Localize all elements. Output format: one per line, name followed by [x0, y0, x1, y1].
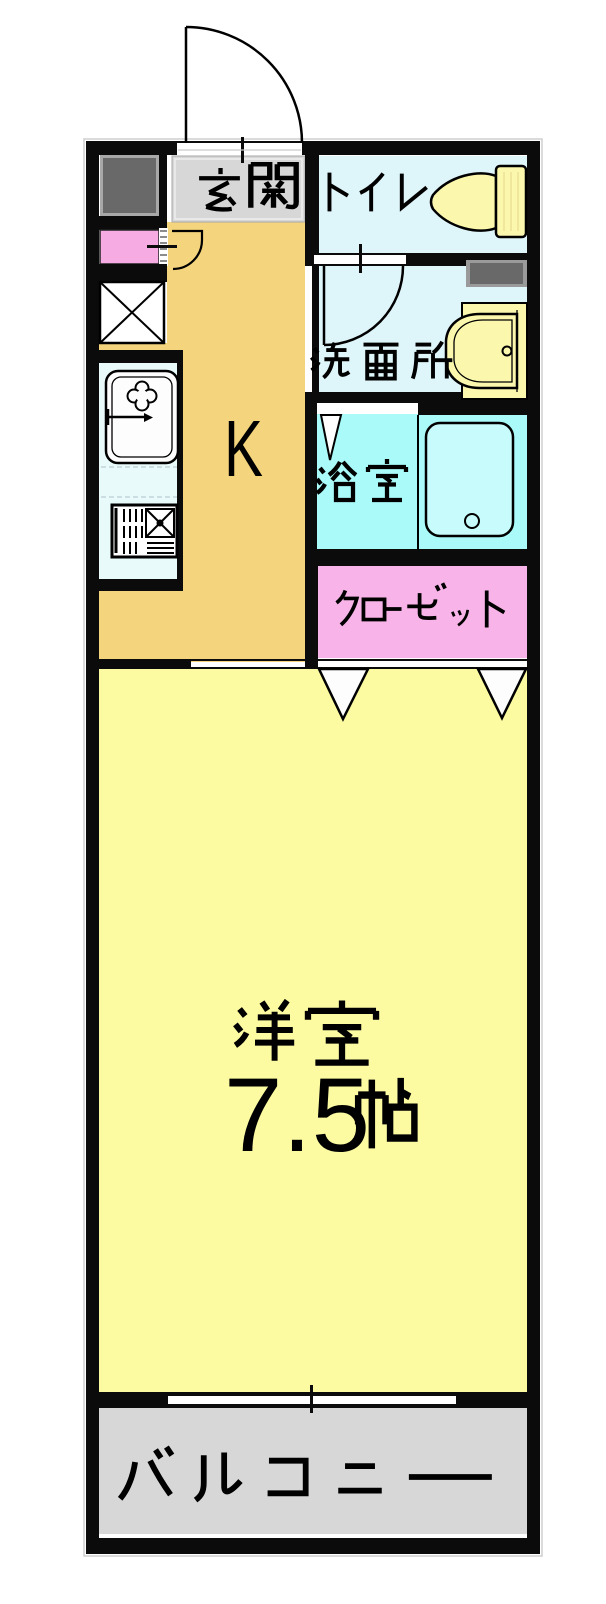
- svg-text:7.5: 7.5: [224, 1057, 370, 1174]
- svg-text:K: K: [224, 404, 263, 493]
